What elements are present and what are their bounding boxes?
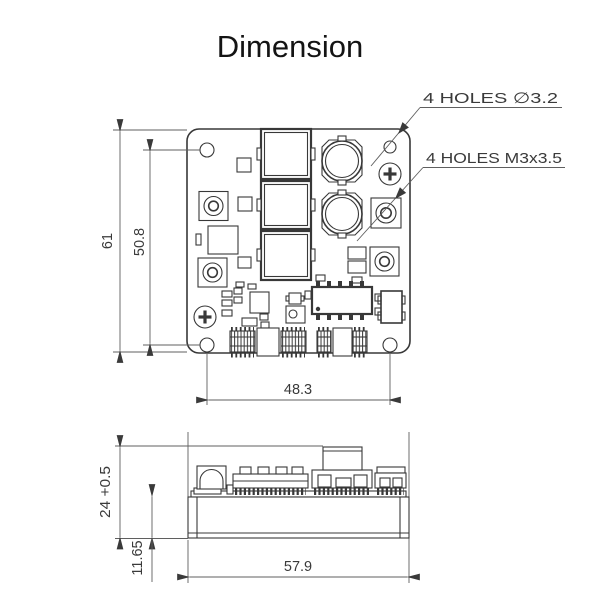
callout-holes-32-label: 4 HOLES ∅3.2: [423, 90, 558, 107]
drawing-svg: Dimension: [0, 0, 600, 600]
dim-hole-spacing-vertical: 50.8: [132, 150, 200, 345]
dim-base-height: 11.65: [130, 497, 152, 583]
dim-11-65-label: 11.65: [130, 540, 146, 575]
connector-a-side: [233, 467, 308, 492]
dim-24-label: 24 +0.5: [98, 466, 114, 518]
heatsink-base: [188, 497, 409, 538]
hole-bottom-left: [200, 338, 214, 352]
page-title: Dimension: [217, 29, 363, 64]
callout-holes-m3-label: 4 HOLES M3x3.5: [426, 150, 562, 167]
bottom-connectors: [230, 328, 367, 356]
ic-chip: [312, 284, 372, 317]
dim-48-3-label: 48.3: [284, 382, 312, 398]
transformer-blocks: [257, 129, 315, 280]
capacitors: [322, 136, 362, 238]
top-view: [187, 129, 410, 356]
connector-b-side: [312, 447, 372, 492]
capacitor-side: [194, 466, 226, 494]
hole-bottom-right: [383, 338, 397, 352]
dim-50-8-label: 50.8: [132, 228, 148, 256]
dim-61-label: 61: [100, 233, 116, 249]
dim-hole-spacing-horizontal: 48.3: [207, 354, 390, 405]
dim-57-9-label: 57.9: [284, 559, 312, 575]
hole-top-left: [200, 143, 214, 157]
dimension-drawing: Dimension: [0, 0, 600, 600]
connector-c-side: [375, 467, 406, 492]
pin1-dot: [316, 307, 320, 311]
dim-board-width: 57.9: [188, 540, 408, 583]
